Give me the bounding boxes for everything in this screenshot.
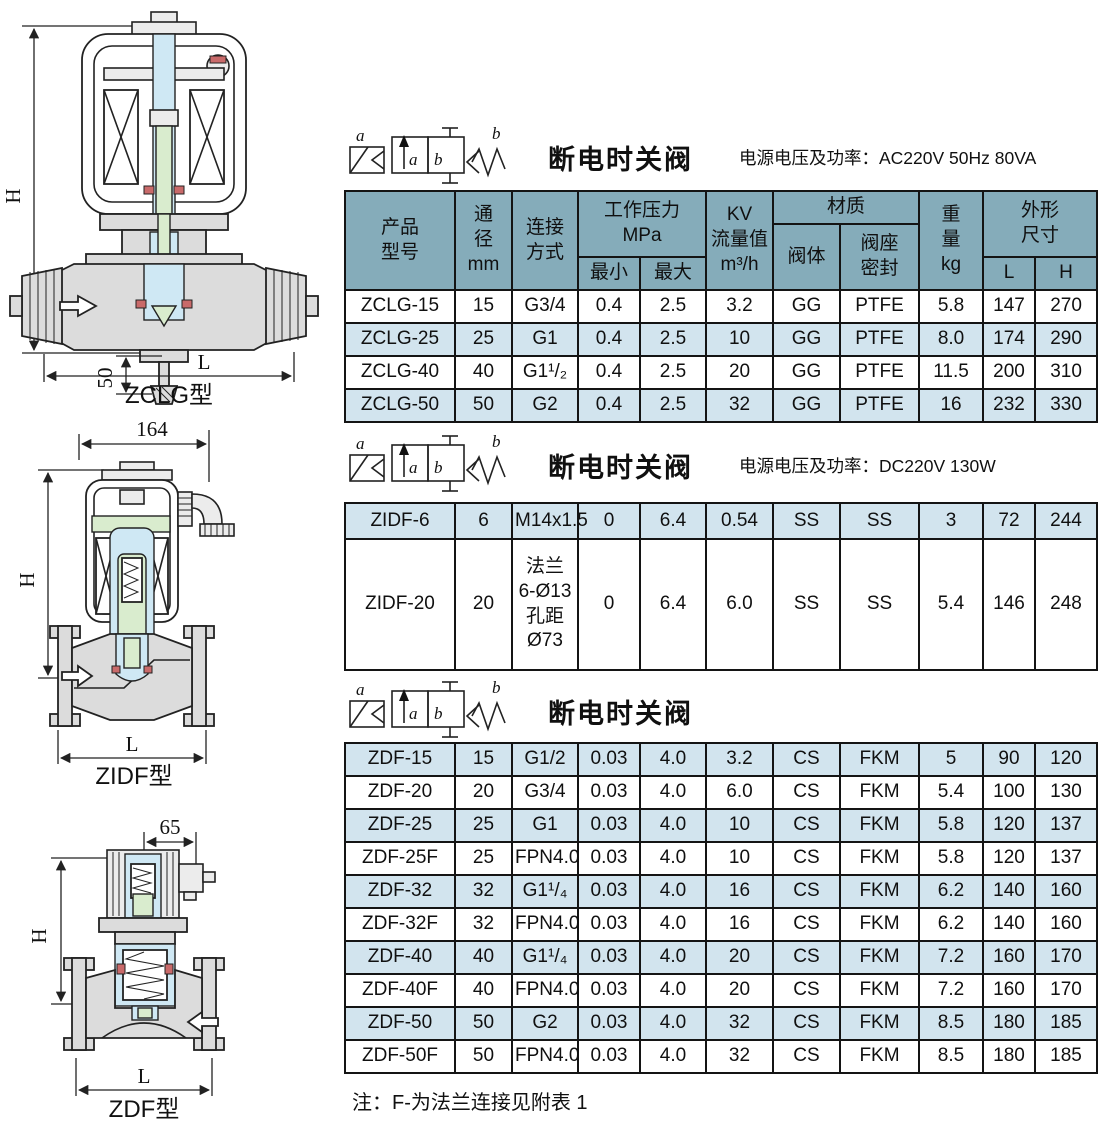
- value-cell: 6.0: [706, 539, 773, 670]
- value-cell: G1/2: [512, 743, 578, 776]
- value-cell: CS: [773, 809, 840, 842]
- value-cell: SS: [840, 539, 919, 670]
- header-product: 产品 型号: [345, 191, 455, 290]
- value-cell: PTFE: [840, 356, 919, 389]
- section-header-3: 断电时关阀: [344, 680, 1096, 742]
- value-cell: CS: [773, 908, 840, 941]
- value-cell: FPN4.0: [512, 1040, 578, 1073]
- value-cell: SS: [840, 503, 919, 539]
- value-cell: CS: [773, 842, 840, 875]
- model-cell: ZCLG-40: [345, 356, 455, 389]
- value-cell: GG: [773, 290, 840, 323]
- value-cell: 3.2: [706, 743, 773, 776]
- value-cell: 10: [706, 323, 773, 356]
- zclg-dim-l: L: [198, 350, 211, 374]
- value-cell: 270: [1035, 290, 1097, 323]
- zclg-spec-table: 产品 型号 通 径 mm 连接 方式 工作压力 MPa KV 流量值 m³/h …: [344, 190, 1098, 423]
- value-cell: 0.03: [578, 941, 640, 974]
- value-cell: SS: [773, 503, 840, 539]
- section-title: 断电时关阀: [548, 692, 693, 731]
- value-cell: FKM: [840, 1007, 919, 1040]
- value-cell: 7.2: [919, 974, 983, 1007]
- value-cell: 160: [1035, 908, 1097, 941]
- value-cell: G3/4: [512, 776, 578, 809]
- value-cell: 32: [455, 908, 512, 941]
- value-cell: 4.0: [640, 875, 706, 908]
- zidf-spec-table: ZIDF-66M14x1.506.40.54SSSS372244ZIDF-202…: [344, 502, 1098, 671]
- value-cell: 6.4: [640, 539, 706, 670]
- value-cell: 5.4: [919, 776, 983, 809]
- value-cell: 174: [983, 323, 1035, 356]
- value-cell: 0.03: [578, 875, 640, 908]
- value-cell: G1¹/₂: [512, 356, 578, 389]
- value-cell: 20: [706, 974, 773, 1007]
- value-cell: 8.5: [919, 1007, 983, 1040]
- value-cell: 法兰 6-Ø13 孔距 Ø73: [512, 539, 578, 670]
- value-cell: 160: [1035, 875, 1097, 908]
- zdf-diagram: 65 H: [4, 818, 334, 1126]
- value-cell: 4.0: [640, 842, 706, 875]
- value-cell: 16: [706, 908, 773, 941]
- table-row: ZIDF-66M14x1.506.40.54SSSS372244: [345, 503, 1097, 539]
- header-weight: 重 量 kg: [919, 191, 983, 290]
- zidf-diagram: 164 H: [4, 420, 334, 793]
- value-cell: 5.4: [919, 539, 983, 670]
- value-cell: G1¹/₄: [512, 875, 578, 908]
- value-cell: 2.5: [640, 290, 706, 323]
- value-cell: 11.5: [919, 356, 983, 389]
- value-cell: 0.03: [578, 842, 640, 875]
- value-cell: GG: [773, 323, 840, 356]
- zdf-type-label: ZDF型: [109, 1096, 180, 1121]
- table-row: ZDF-40F40FPN4.00.034.020CSFKM7.2160170: [345, 974, 1097, 1007]
- value-cell: FKM: [840, 776, 919, 809]
- value-cell: 140: [983, 875, 1035, 908]
- value-cell: 4.0: [640, 1040, 706, 1073]
- table-row: ZDF-4040G1¹/₄0.034.020CSFKM7.2160170: [345, 941, 1097, 974]
- value-cell: 185: [1035, 1007, 1097, 1040]
- value-cell: CS: [773, 743, 840, 776]
- zidf-table-container: ZIDF-66M14x1.506.40.54SSSS372244ZIDF-202…: [344, 502, 1098, 671]
- table-row: ZCLG-2525G10.42.510GGPTFE8.0174290: [345, 323, 1097, 356]
- power-spec-text: 电源电压及功率：DC220V 130W: [739, 453, 996, 478]
- table-row: ZDF-32F32FPN4.00.034.016CSFKM6.2140160: [345, 908, 1097, 941]
- value-cell: 0.03: [578, 974, 640, 1007]
- value-cell: 232: [983, 389, 1035, 422]
- value-cell: 6.4: [640, 503, 706, 539]
- model-cell: ZCLG-25: [345, 323, 455, 356]
- value-cell: 140: [983, 908, 1035, 941]
- zdf-dim-65: 65: [160, 818, 181, 839]
- model-cell: ZDF-32F: [345, 908, 455, 941]
- zidf-dim-l: L: [126, 732, 139, 756]
- value-cell: 25: [455, 323, 512, 356]
- zclg-valve-drawing: H: [4, 6, 334, 406]
- zclg-dim-h: H: [4, 188, 25, 203]
- section-header-2: 断电时关阀 电源电压及功率：DC220V 130W: [344, 434, 1096, 496]
- value-cell: 3.2: [706, 290, 773, 323]
- table-row: ZDF-25F25FPN4.00.034.010CSFKM5.8120137: [345, 842, 1097, 875]
- valve-symbol-icon: [344, 125, 512, 189]
- zdf-dim-l: L: [138, 1064, 151, 1088]
- value-cell: 32: [706, 1040, 773, 1073]
- value-cell: CS: [773, 941, 840, 974]
- value-cell: 160: [983, 974, 1035, 1007]
- value-cell: 50: [455, 389, 512, 422]
- zidf-table-body: ZIDF-66M14x1.506.40.54SSSS372244ZIDF-202…: [345, 503, 1097, 670]
- value-cell: 330: [1035, 389, 1097, 422]
- value-cell: PTFE: [840, 389, 919, 422]
- value-cell: 16: [706, 875, 773, 908]
- zclg-diagram: H: [4, 6, 334, 411]
- value-cell: M14x1.5: [512, 503, 578, 539]
- model-cell: ZDF-40: [345, 941, 455, 974]
- value-cell: FKM: [840, 941, 919, 974]
- value-cell: 40: [455, 941, 512, 974]
- value-cell: CS: [773, 875, 840, 908]
- value-cell: 248: [1035, 539, 1097, 670]
- value-cell: G1: [512, 809, 578, 842]
- header-max: 最大: [640, 257, 706, 290]
- value-cell: 0.4: [578, 356, 640, 389]
- value-cell: 72: [983, 503, 1035, 539]
- value-cell: 7.2: [919, 941, 983, 974]
- value-cell: CS: [773, 1040, 840, 1073]
- spec-table-header: 产品 型号 通 径 mm 连接 方式 工作压力 MPa KV 流量值 m³/h …: [345, 191, 1097, 290]
- table-row: ZIDF-2020法兰 6-Ø13 孔距 Ø7306.46.0SSSS5.414…: [345, 539, 1097, 670]
- value-cell: 0.03: [578, 1007, 640, 1040]
- value-cell: 120: [983, 809, 1035, 842]
- section-header-1: 断电时关阀 电源电压及功率：AC220V 50Hz 80VA: [344, 126, 1096, 188]
- value-cell: 25: [455, 809, 512, 842]
- value-cell: 0.03: [578, 743, 640, 776]
- value-cell: 120: [1035, 743, 1097, 776]
- model-cell: ZCLG-15: [345, 290, 455, 323]
- table-row: ZDF-5050G20.034.032CSFKM8.5180185: [345, 1007, 1097, 1040]
- value-cell: 120: [983, 842, 1035, 875]
- header-material: 材质: [773, 191, 919, 224]
- value-cell: 310: [1035, 356, 1097, 389]
- value-cell: 4.0: [640, 974, 706, 1007]
- model-cell: ZDF-40F: [345, 974, 455, 1007]
- value-cell: 0.03: [578, 908, 640, 941]
- model-cell: ZDF-25F: [345, 842, 455, 875]
- table-row: ZDF-50F50FPN4.00.034.032CSFKM8.5180185: [345, 1040, 1097, 1073]
- value-cell: 170: [1035, 974, 1097, 1007]
- value-cell: 5.8: [919, 842, 983, 875]
- value-cell: FKM: [840, 809, 919, 842]
- value-cell: 5.8: [919, 809, 983, 842]
- value-cell: 20: [706, 356, 773, 389]
- value-cell: 6.0: [706, 776, 773, 809]
- value-cell: CS: [773, 974, 840, 1007]
- value-cell: 180: [983, 1040, 1035, 1073]
- value-cell: FPN4.0: [512, 842, 578, 875]
- value-cell: 2.5: [640, 323, 706, 356]
- value-cell: 10: [706, 809, 773, 842]
- value-cell: CS: [773, 776, 840, 809]
- valve-symbol-icon: [344, 433, 512, 497]
- table-row: ZCLG-5050G20.42.532GGPTFE16232330: [345, 389, 1097, 422]
- value-cell: 32: [706, 1007, 773, 1040]
- value-cell: 4.0: [640, 1007, 706, 1040]
- zdf-table-container: ZDF-1515G1/20.034.03.2CSFKM590120ZDF-202…: [344, 742, 1098, 1074]
- value-cell: 146: [983, 539, 1035, 670]
- value-cell: 6: [455, 503, 512, 539]
- value-cell: 0.4: [578, 389, 640, 422]
- value-cell: 0: [578, 539, 640, 670]
- header-bore: 通 径 mm: [455, 191, 512, 290]
- model-cell: ZDF-50: [345, 1007, 455, 1040]
- value-cell: GG: [773, 356, 840, 389]
- value-cell: 5: [919, 743, 983, 776]
- value-cell: G3/4: [512, 290, 578, 323]
- value-cell: 32: [455, 875, 512, 908]
- model-cell: ZDF-15: [345, 743, 455, 776]
- zidf-type-label: ZIDF型: [95, 763, 172, 788]
- value-cell: CS: [773, 1007, 840, 1040]
- header-valve-body: 阀体: [773, 224, 840, 290]
- zidf-valve-drawing: 164 H: [4, 420, 334, 788]
- table-row: ZCLG-4040G1¹/₂0.42.520GGPTFE11.5200310: [345, 356, 1097, 389]
- zdf-valve-drawing: 65 H: [4, 818, 334, 1121]
- value-cell: 180: [983, 1007, 1035, 1040]
- value-cell: 170: [1035, 941, 1097, 974]
- section-title: 断电时关阀: [548, 138, 693, 177]
- value-cell: SS: [773, 539, 840, 670]
- value-cell: 137: [1035, 809, 1097, 842]
- value-cell: 40: [455, 974, 512, 1007]
- value-cell: G2: [512, 389, 578, 422]
- value-cell: 10: [706, 842, 773, 875]
- value-cell: 160: [983, 941, 1035, 974]
- model-cell: ZCLG-50: [345, 389, 455, 422]
- value-cell: PTFE: [840, 323, 919, 356]
- power-spec-text: 电源电压及功率：AC220V 50Hz 80VA: [739, 145, 1036, 170]
- value-cell: FKM: [840, 842, 919, 875]
- value-cell: 2.5: [640, 389, 706, 422]
- value-cell: GG: [773, 389, 840, 422]
- value-cell: 16: [919, 389, 983, 422]
- model-cell: ZDF-25: [345, 809, 455, 842]
- value-cell: 4.0: [640, 908, 706, 941]
- value-cell: 200: [983, 356, 1035, 389]
- value-cell: 32: [706, 389, 773, 422]
- zclg-table-body: ZCLG-1515G3/40.42.53.2GGPTFE5.8147270ZCL…: [345, 290, 1097, 422]
- value-cell: 4.0: [640, 941, 706, 974]
- value-cell: 3: [919, 503, 983, 539]
- header-seat-seal: 阀座 密封: [840, 224, 919, 290]
- value-cell: 290: [1035, 323, 1097, 356]
- zidf-dim-164: 164: [136, 420, 168, 441]
- value-cell: 0.54: [706, 503, 773, 539]
- value-cell: 244: [1035, 503, 1097, 539]
- value-cell: 5.8: [919, 290, 983, 323]
- value-cell: G2: [512, 1007, 578, 1040]
- table-row: ZDF-1515G1/20.034.03.2CSFKM590120: [345, 743, 1097, 776]
- table-row: ZDF-2525G10.034.010CSFKM5.8120137: [345, 809, 1097, 842]
- value-cell: 4.0: [640, 776, 706, 809]
- header-kv: KV 流量值 m³/h: [706, 191, 773, 290]
- header-connection: 连接 方式: [512, 191, 578, 290]
- value-cell: 4.0: [640, 809, 706, 842]
- value-cell: 0.4: [578, 323, 640, 356]
- value-cell: 8.0: [919, 323, 983, 356]
- valve-symbol-icon: [344, 679, 512, 743]
- footnote: 注：F-为法兰连接见附表 1: [352, 1086, 588, 1115]
- model-cell: ZIDF-6: [345, 503, 455, 539]
- value-cell: 0.03: [578, 809, 640, 842]
- value-cell: 0.03: [578, 776, 640, 809]
- value-cell: 185: [1035, 1040, 1097, 1073]
- value-cell: 50: [455, 1007, 512, 1040]
- zidf-dim-h: H: [15, 572, 39, 587]
- value-cell: 15: [455, 290, 512, 323]
- value-cell: 20: [706, 941, 773, 974]
- value-cell: 40: [455, 356, 512, 389]
- value-cell: 8.5: [919, 1040, 983, 1073]
- value-cell: 4.0: [640, 743, 706, 776]
- value-cell: FKM: [840, 875, 919, 908]
- value-cell: 50: [455, 1040, 512, 1073]
- value-cell: FKM: [840, 1040, 919, 1073]
- model-cell: ZIDF-20: [345, 539, 455, 670]
- value-cell: G1: [512, 323, 578, 356]
- zclg-type-label: ZCLG型: [125, 382, 213, 406]
- value-cell: 2.5: [640, 356, 706, 389]
- model-cell: ZDF-32: [345, 875, 455, 908]
- header-L: L: [983, 257, 1035, 290]
- value-cell: 20: [455, 539, 512, 670]
- value-cell: 0.03: [578, 1040, 640, 1073]
- value-cell: FPN4.0: [512, 908, 578, 941]
- value-cell: 100: [983, 776, 1035, 809]
- header-H: H: [1035, 257, 1097, 290]
- model-cell: ZDF-20: [345, 776, 455, 809]
- table-row: ZCLG-1515G3/40.42.53.2GGPTFE5.8147270: [345, 290, 1097, 323]
- value-cell: G1¹/₄: [512, 941, 578, 974]
- value-cell: 0.4: [578, 290, 640, 323]
- header-overall: 外形 尺寸: [983, 191, 1097, 257]
- value-cell: 90: [983, 743, 1035, 776]
- header-working-pressure: 工作压力 MPa: [578, 191, 706, 257]
- model-cell: ZDF-50F: [345, 1040, 455, 1073]
- zclg-dim-50: 50: [93, 368, 117, 389]
- zdf-dim-h: H: [27, 928, 51, 943]
- value-cell: 15: [455, 743, 512, 776]
- value-cell: 6.2: [919, 875, 983, 908]
- value-cell: FKM: [840, 743, 919, 776]
- value-cell: 6.2: [919, 908, 983, 941]
- header-min: 最小: [578, 257, 640, 290]
- table-row: ZDF-2020G3/40.034.06.0CSFKM5.4100130: [345, 776, 1097, 809]
- value-cell: FPN4.0: [512, 974, 578, 1007]
- zdf-spec-table: ZDF-1515G1/20.034.03.2CSFKM590120ZDF-202…: [344, 742, 1098, 1074]
- value-cell: 25: [455, 842, 512, 875]
- value-cell: 20: [455, 776, 512, 809]
- value-cell: 137: [1035, 842, 1097, 875]
- table-row: ZDF-3232G1¹/₄0.034.016CSFKM6.2140160: [345, 875, 1097, 908]
- zclg-table-container: 产品 型号 通 径 mm 连接 方式 工作压力 MPa KV 流量值 m³/h …: [344, 190, 1098, 423]
- zdf-table-body: ZDF-1515G1/20.034.03.2CSFKM590120ZDF-202…: [345, 743, 1097, 1073]
- section-title: 断电时关阀: [548, 446, 693, 485]
- value-cell: 147: [983, 290, 1035, 323]
- value-cell: PTFE: [840, 290, 919, 323]
- value-cell: 130: [1035, 776, 1097, 809]
- value-cell: FKM: [840, 974, 919, 1007]
- value-cell: FKM: [840, 908, 919, 941]
